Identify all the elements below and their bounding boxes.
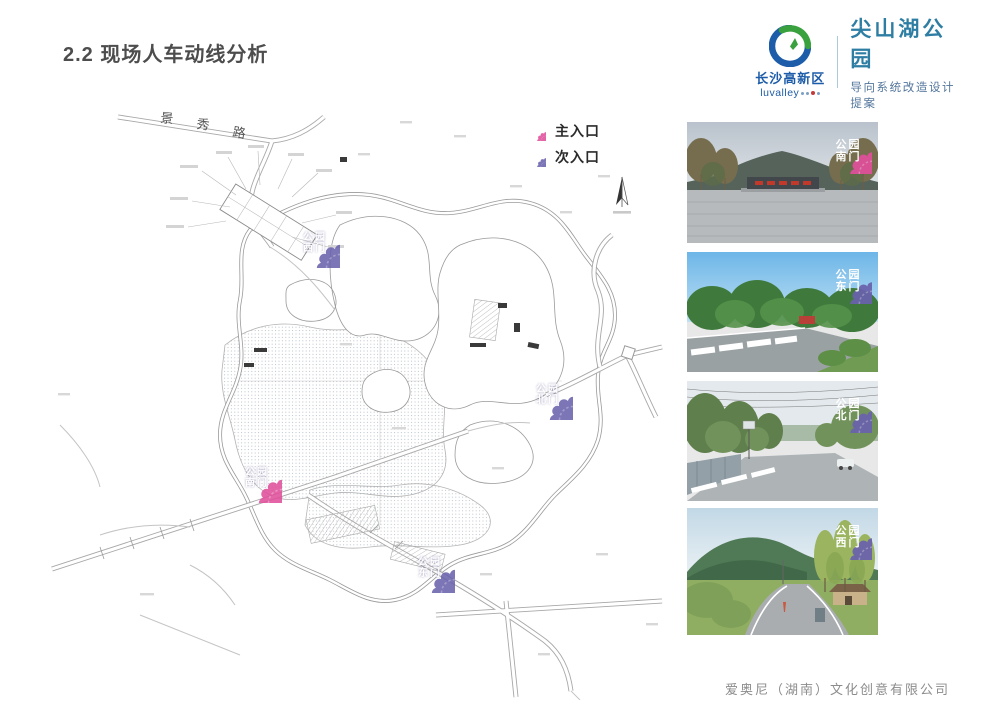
page-title: 2.2 现场人车动线分析 xyxy=(63,38,268,67)
photo-west-gate: 公园西门 xyxy=(687,508,878,635)
project-subtitle: 导向系统改造设计提案 xyxy=(850,79,967,111)
site-plan-map: 景 秀 路 xyxy=(40,95,670,700)
project-name: 尖山湖公园 xyxy=(850,13,967,73)
badge-west-gate: 公园西门 xyxy=(825,513,872,560)
map-marker-east-gate: 公园东门 xyxy=(405,543,455,593)
logo-dot-red xyxy=(811,91,815,95)
badge-south-gate: 公园南门 xyxy=(825,127,872,174)
org-latin: luvalley xyxy=(752,87,829,99)
brand-divider xyxy=(837,36,839,88)
svg-text:景: 景 xyxy=(160,110,175,126)
slide: 2.2 现场人车动线分析 长沙高新区 luvalley 尖山湖公园 导向系统改造… xyxy=(0,0,1000,707)
photo-north-gate: 公园北门 xyxy=(687,381,878,501)
map-marker-west-gate: 公园西门 xyxy=(290,218,340,268)
brand-block: 长沙高新区 luvalley 尖山湖公园 导向系统改造设计提案 xyxy=(752,26,967,98)
org-logo-icon xyxy=(769,25,811,67)
badge-north-gate: 公园北门 xyxy=(825,386,872,433)
photo-east-gate: 公园东门 xyxy=(687,252,878,372)
map-marker-south-gate: 公园南门 xyxy=(232,453,282,503)
logo-dot xyxy=(806,92,809,95)
logo-dot xyxy=(801,92,804,95)
map-marker-north-gate: 公园北门 xyxy=(523,370,573,420)
logo-dot xyxy=(817,92,820,95)
footer-company: 爱奥尼（湖南）文化创意有限公司 xyxy=(725,679,950,698)
photo-south-gate: 公园南门 xyxy=(687,122,878,243)
org-logo: 长沙高新区 luvalley xyxy=(752,25,829,99)
svg-text:秀: 秀 xyxy=(196,116,211,133)
badge-east-gate: 公园东门 xyxy=(825,257,872,304)
org-name: 长沙高新区 xyxy=(752,68,829,87)
north-arrow-icon xyxy=(613,177,631,214)
svg-text:路: 路 xyxy=(231,124,246,141)
